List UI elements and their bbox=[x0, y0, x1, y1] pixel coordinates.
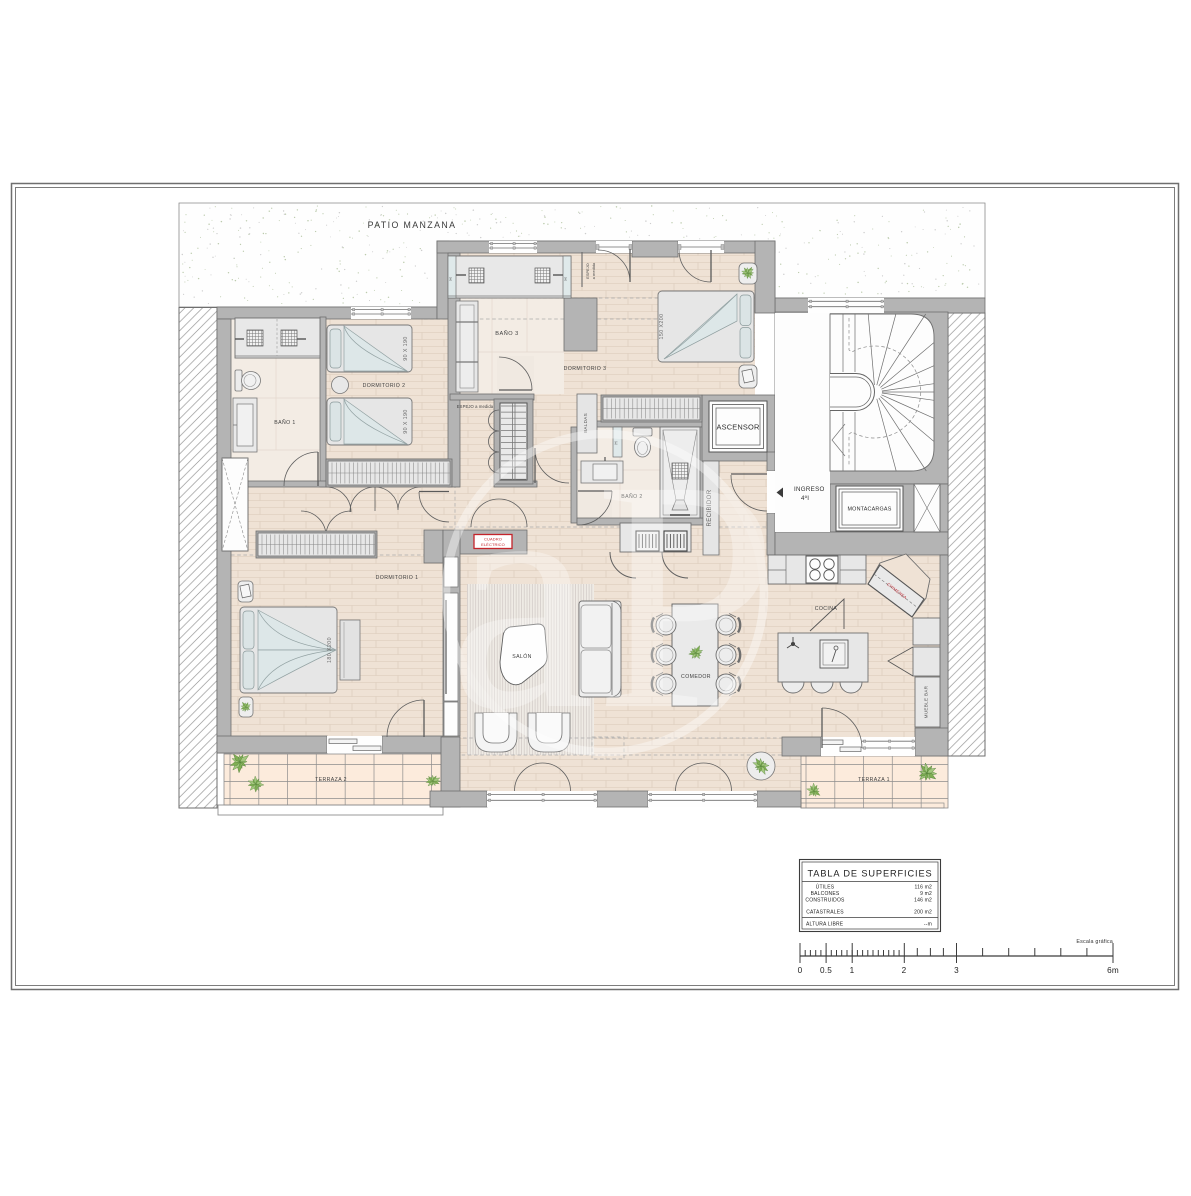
svg-text:TERRAZA 1: TERRAZA 1 bbox=[858, 777, 890, 783]
svg-text:COCINA: COCINA bbox=[815, 606, 838, 612]
svg-text:CONSTRUIDOS: CONSTRUIDOS bbox=[805, 898, 845, 904]
svg-text:1: 1 bbox=[850, 966, 855, 975]
svg-text:Escala gráfica: Escala gráfica bbox=[1076, 939, 1113, 945]
svg-text:150 X200: 150 X200 bbox=[659, 314, 665, 340]
svg-text:200 m2: 200 m2 bbox=[914, 910, 932, 916]
svg-text:2: 2 bbox=[902, 966, 907, 975]
svg-text:BALCONES: BALCONES bbox=[811, 891, 840, 897]
svg-text:90 X 190: 90 X 190 bbox=[403, 409, 409, 433]
svg-text:TABLA DE SUPERFICIES: TABLA DE SUPERFICIES bbox=[807, 869, 932, 879]
svg-text:BAÑO 1: BAÑO 1 bbox=[274, 419, 295, 426]
svg-text:ALTURA LIBRE: ALTURA LIBRE bbox=[806, 922, 844, 928]
svg-text:MONTACARGAS: MONTACARGAS bbox=[847, 507, 891, 513]
svg-text:90 X 190: 90 X 190 bbox=[403, 336, 409, 360]
svg-text:4ºI: 4ºI bbox=[801, 495, 809, 502]
svg-text:9 m2: 9 m2 bbox=[920, 891, 932, 897]
svg-text:DORMITORIO 2: DORMITORIO 2 bbox=[363, 383, 406, 389]
svg-text:H: H bbox=[448, 277, 453, 280]
svg-text:BAÑO 3: BAÑO 3 bbox=[495, 330, 519, 337]
svg-text:DORMITORIO 3: DORMITORIO 3 bbox=[564, 366, 607, 372]
svg-text:INGRESO: INGRESO bbox=[794, 486, 825, 493]
svg-text:116 m2: 116 m2 bbox=[914, 885, 932, 891]
svg-text:CATASTRALES: CATASTRALES bbox=[806, 910, 844, 916]
svg-text:0: 0 bbox=[798, 966, 803, 975]
svg-text:aP: aP bbox=[448, 413, 778, 778]
svg-text:0.5: 0.5 bbox=[820, 966, 832, 975]
svg-text:146 m2: 146 m2 bbox=[914, 898, 932, 904]
svg-text:180 X200: 180 X200 bbox=[327, 637, 333, 663]
svg-text:6m: 6m bbox=[1107, 966, 1119, 975]
svg-text:MUEBLE BAR: MUEBLE BAR bbox=[924, 685, 929, 718]
svg-text:H: H bbox=[563, 277, 568, 280]
svg-text:DORMITORIO 1: DORMITORIO 1 bbox=[376, 575, 419, 581]
svg-text:TERRAZA 2: TERRAZA 2 bbox=[315, 777, 347, 783]
svg-text:ESPEJO: ESPEJO bbox=[586, 263, 590, 279]
svg-text:3: 3 bbox=[954, 966, 959, 975]
svg-text:--m: --m bbox=[924, 922, 932, 928]
svg-text:a medida: a medida bbox=[592, 262, 596, 279]
svg-text:PATIO MANZANA: PATIO MANZANA bbox=[368, 220, 457, 230]
svg-text:ESPEJO a medida: ESPEJO a medida bbox=[457, 404, 494, 409]
svg-text:ÚTILES: ÚTILES bbox=[816, 884, 835, 891]
